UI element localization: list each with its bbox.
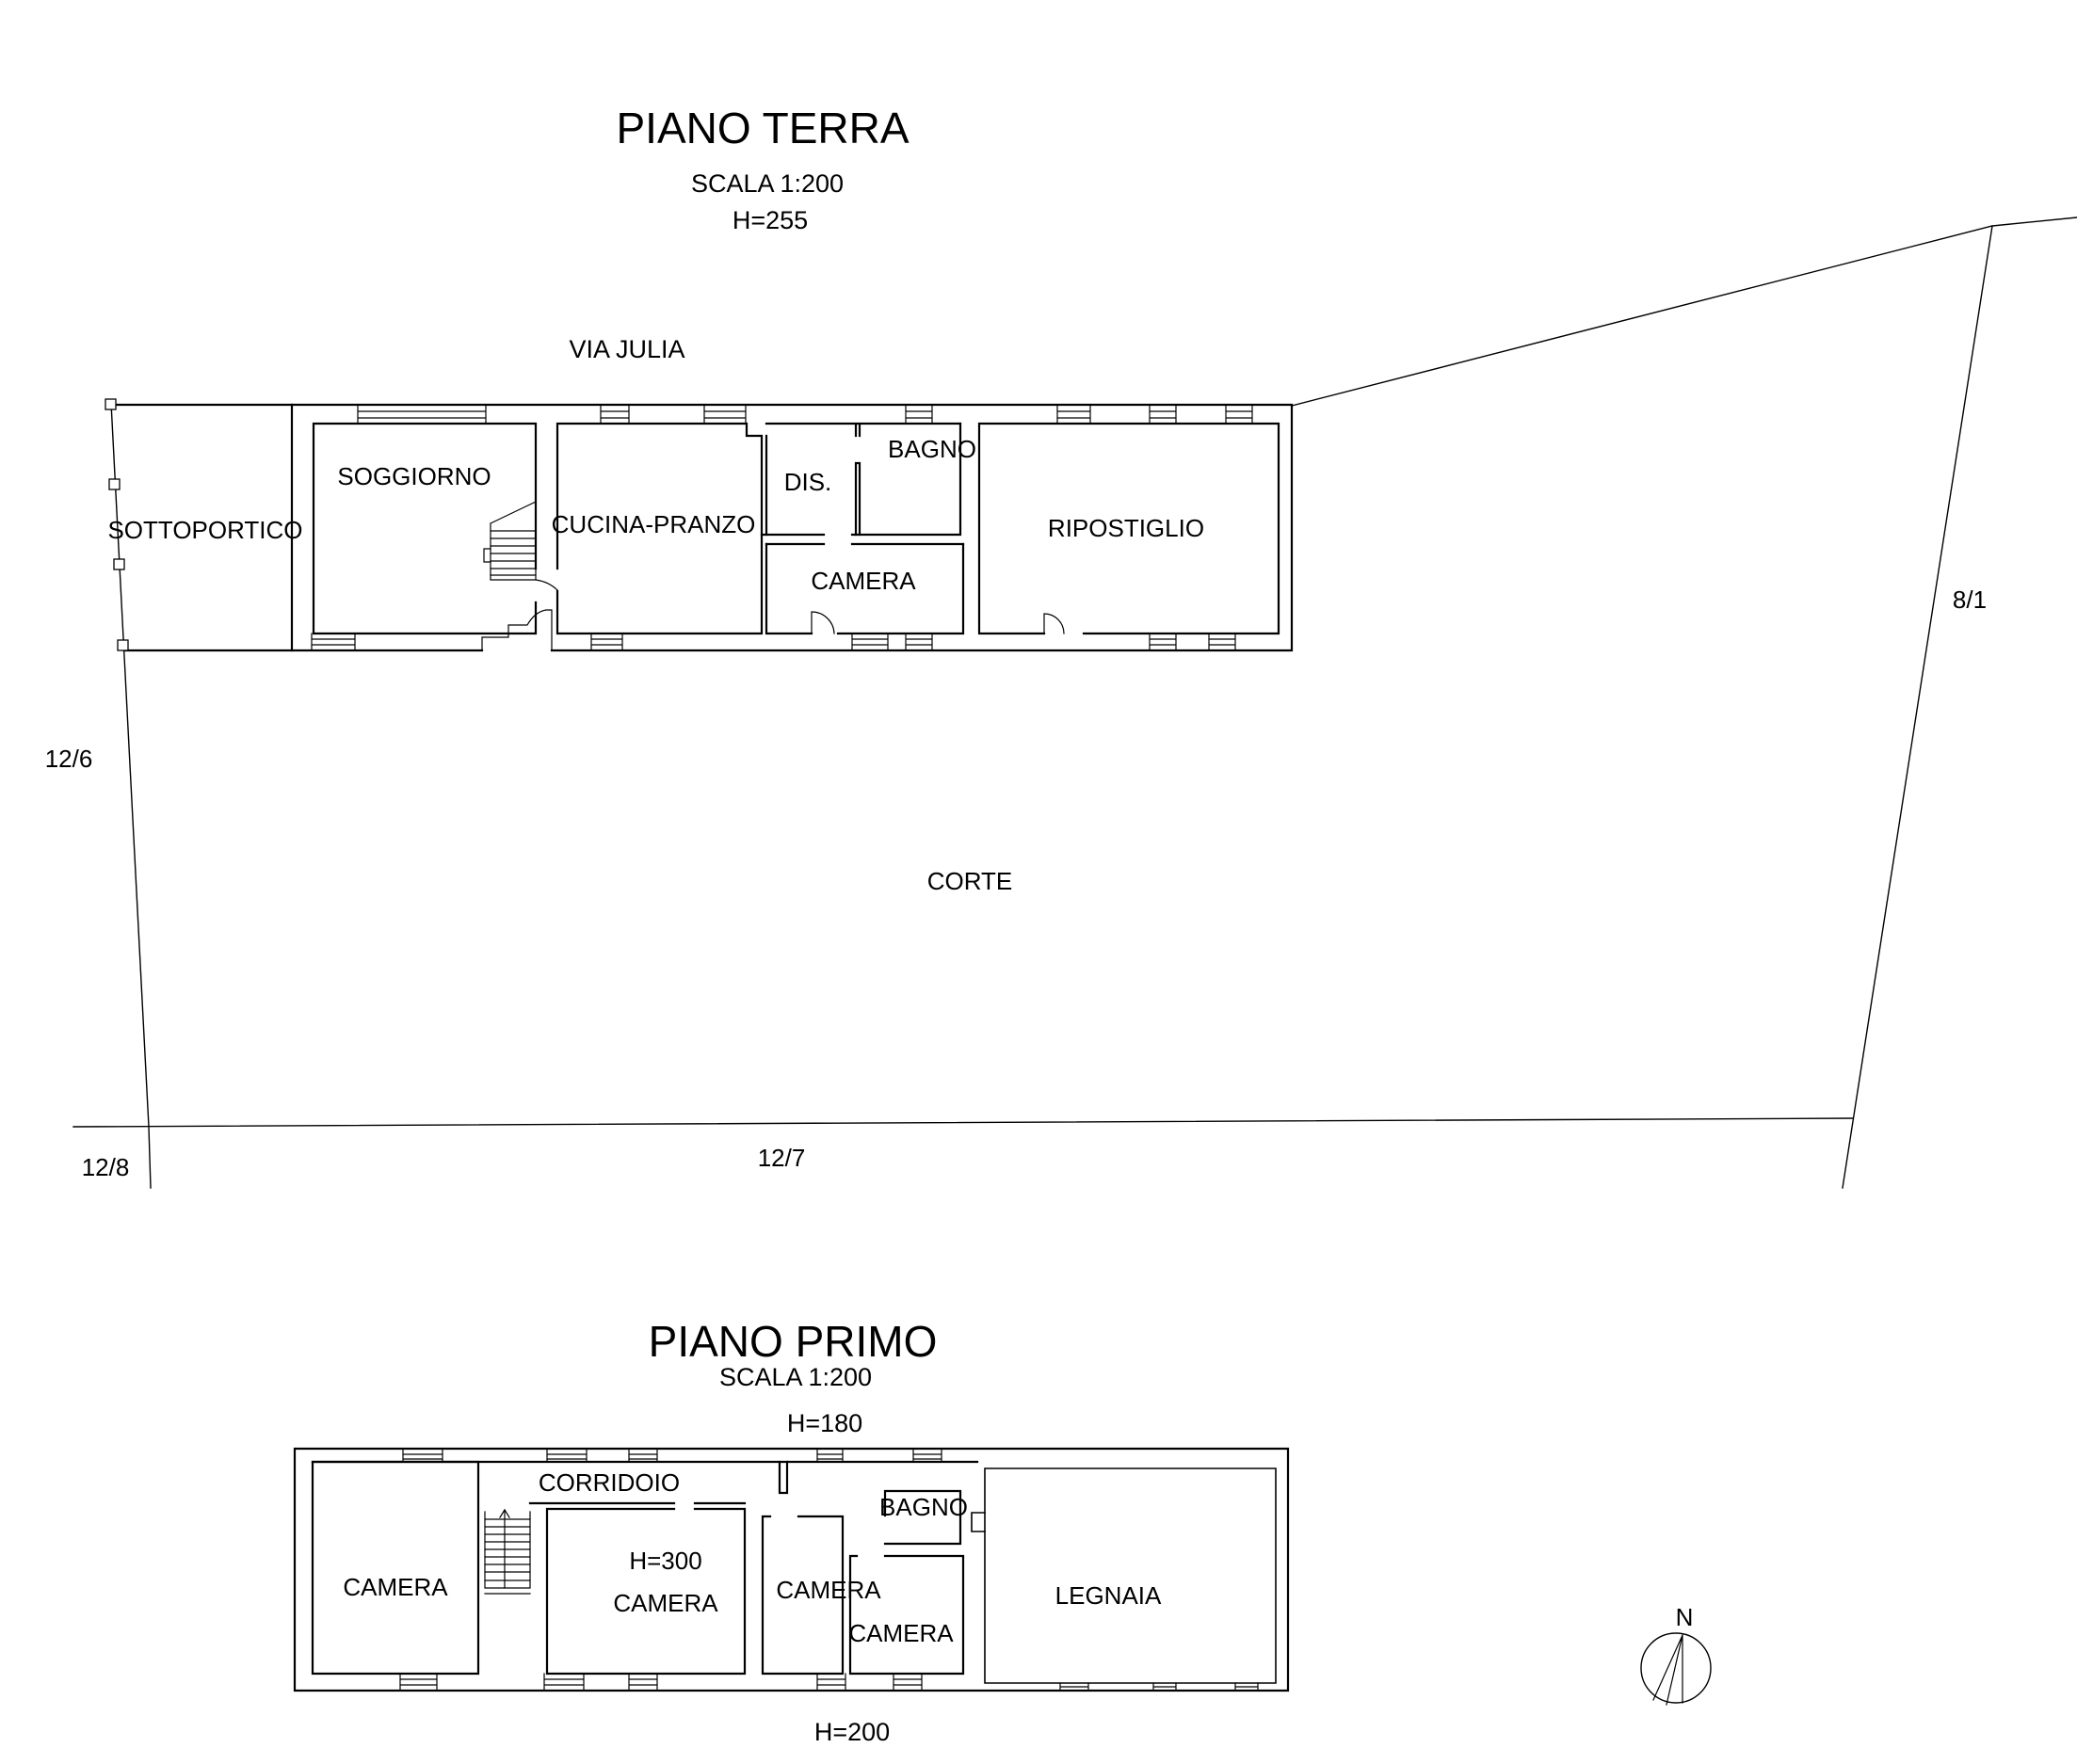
room-legnaia-walls — [985, 1468, 1276, 1683]
corridor-east-wall — [780, 1462, 787, 1493]
ground-south-windows — [312, 633, 1235, 650]
legnaia-wall-notch — [972, 1513, 985, 1531]
first-floor-scale-label: SCALA 1:200 — [719, 1363, 872, 1391]
stair-treads — [485, 1519, 530, 1580]
window — [817, 1449, 843, 1462]
room-label-dis: DIS. — [784, 468, 832, 496]
first-south-windows — [400, 1674, 1258, 1691]
floor-plan-sheet: PIANO TERRA SCALA 1:200 H=255 VIA JULIA … — [0, 0, 2077, 1764]
window — [629, 1449, 657, 1462]
ground-floor-scale-label: SCALA 1:200 — [691, 169, 844, 198]
portico-pillar — [105, 399, 116, 409]
plot-boundary-northeast-line — [1292, 217, 2077, 406]
court-label: CORTE — [927, 867, 1013, 895]
room-label-legnaia: LEGNAIA — [1055, 1581, 1162, 1610]
room-label-ripostiglio: RIPOSTIGLIO — [1048, 514, 1204, 542]
window — [704, 405, 746, 424]
portico-pillar — [109, 479, 120, 489]
stair-treads — [491, 531, 536, 575]
window — [1226, 405, 1252, 424]
window — [906, 633, 932, 650]
window — [601, 405, 629, 424]
window — [312, 633, 355, 650]
stair-outline — [485, 1512, 530, 1594]
room-label-soggiorno: SOGGIORNO — [337, 462, 491, 490]
room-label-sottoportico: SOTTOPORTICO — [107, 516, 302, 544]
parcel-label-8-1: 8/1 — [1953, 585, 1987, 614]
stair-exit-curve — [536, 580, 557, 590]
ground-staircase — [484, 500, 557, 590]
room-label-corridoio: CORRIDOIO — [539, 1468, 680, 1497]
window — [1209, 633, 1235, 650]
room-soggiorno-walls — [314, 424, 536, 633]
plot-boundary: 12/6 12/8 12/7 8/1 CORTE — [45, 217, 2077, 1188]
window — [1060, 1683, 1088, 1691]
window — [906, 405, 932, 424]
first-outer-walls — [295, 1449, 1288, 1691]
floor-plan-drawing: PIANO TERRA SCALA 1:200 H=255 VIA JULIA … — [0, 0, 2077, 1764]
parcel-label-12-8: 12/8 — [82, 1153, 130, 1181]
ground-floor-plan: PIANO TERRA SCALA 1:200 H=255 VIA JULIA … — [45, 104, 2077, 1188]
compass-circle — [1641, 1633, 1711, 1703]
first-staircase — [485, 1510, 530, 1594]
ground-floor-title: PIANO TERRA — [617, 104, 910, 152]
stair-outline — [491, 500, 536, 580]
room-label-cucina-pranzo: CUCINA-PRANZO — [552, 510, 756, 538]
room-label-camera-east: CAMERA — [848, 1619, 954, 1647]
parcel-label-12-6: 12/6 — [45, 745, 93, 773]
window — [817, 1674, 845, 1691]
compass: N — [1641, 1603, 1711, 1705]
parcel-label-12-7: 12/7 — [758, 1144, 806, 1172]
entrance-steps — [482, 610, 552, 650]
window — [1150, 405, 1176, 424]
window — [403, 1449, 443, 1462]
window — [358, 405, 486, 424]
window — [629, 1674, 657, 1691]
first-floor-height-bottom-label: H=200 — [814, 1718, 890, 1746]
first-north-windows — [403, 1449, 942, 1462]
portico-pillar — [118, 640, 128, 650]
portico-pillar — [114, 559, 124, 569]
window — [544, 1674, 584, 1691]
camera-door-swing — [812, 612, 834, 633]
ripostiglio-door-swing — [1044, 614, 1064, 633]
room-label-camera-center: CAMERA — [613, 1589, 718, 1617]
plot-boundary-south-line — [73, 1118, 1853, 1127]
window — [400, 1674, 437, 1691]
room-label-camera-mid: CAMERA — [776, 1576, 881, 1604]
first-floor-title: PIANO PRIMO — [649, 1317, 938, 1366]
compass-north-label: N — [1676, 1603, 1694, 1631]
stair-notch — [484, 549, 491, 562]
room-camera-west-walls — [313, 1462, 478, 1674]
room-label-bagno-first: BAGNO — [879, 1493, 968, 1521]
window — [547, 1449, 587, 1462]
window — [894, 1674, 922, 1691]
window — [591, 633, 622, 650]
window — [852, 633, 888, 650]
window — [1153, 1683, 1176, 1691]
room-label-camera-ground: CAMERA — [811, 567, 916, 595]
ground-floor-building: SOTTOPORTICO SOGGIORNO CUCINA-PRANZO DIS… — [105, 399, 1292, 650]
ground-floor-height-label: H=255 — [733, 206, 808, 234]
window — [1057, 405, 1090, 424]
first-floor-plan: PIANO PRIMO SCALA 1:200 H=180 H=200 — [295, 1317, 1288, 1746]
window — [1235, 1683, 1258, 1691]
first-floor-height-top-label: H=180 — [787, 1409, 862, 1437]
room-label-camera-west: CAMERA — [343, 1573, 448, 1601]
room-label-camera-center-height: H=300 — [629, 1547, 701, 1575]
compass-needle-icon — [1653, 1635, 1683, 1705]
window — [1150, 633, 1176, 650]
window — [913, 1449, 942, 1462]
street-label: VIA JULIA — [569, 335, 684, 363]
room-camera-east-walls — [850, 1556, 963, 1674]
room-label-bagno-ground: BAGNO — [888, 435, 976, 463]
ground-north-windows — [358, 405, 1252, 424]
first-floor-building: CAMERA CORRIDOIO H=300 CAMERA CAMERA CAM… — [295, 1449, 1288, 1691]
plot-boundary-east-line — [1843, 226, 1992, 1188]
